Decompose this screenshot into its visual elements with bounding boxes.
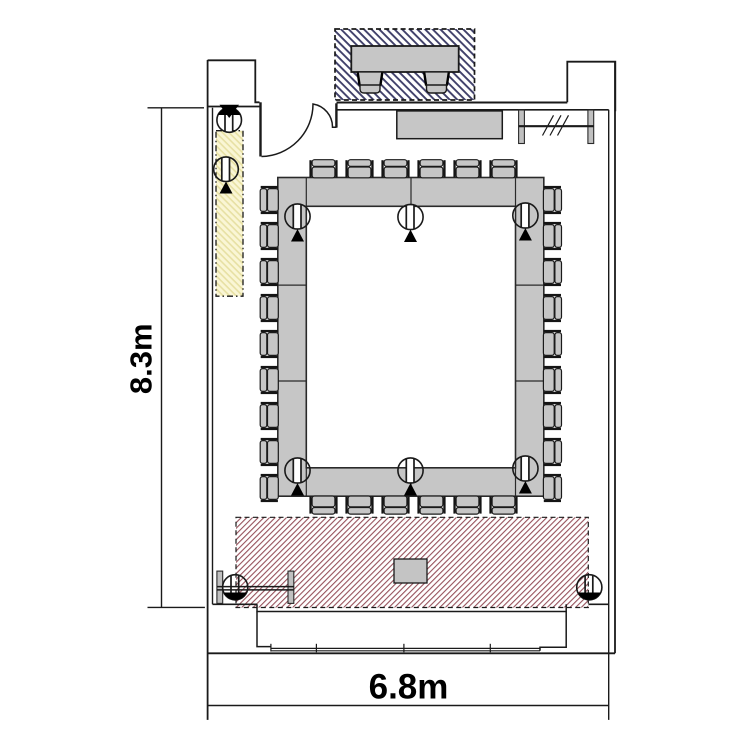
svg-text:8.3m: 8.3m xyxy=(124,323,159,394)
svg-text:6.8m: 6.8m xyxy=(369,668,449,707)
